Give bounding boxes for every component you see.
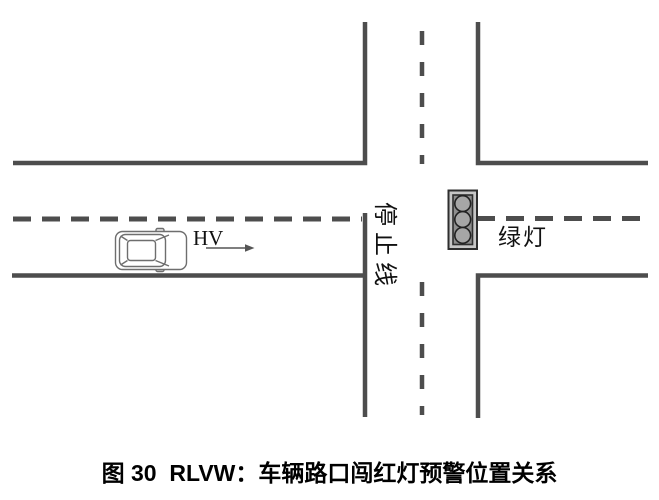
signal-lamp-bottom bbox=[455, 228, 471, 244]
figure-canvas: HV 停止线 绿灯 图 30 RLVW：车辆路口闯红灯预警位置关系 bbox=[0, 0, 659, 500]
road-edge-bottom-right bbox=[478, 276, 648, 419]
stop-line-label: 停止线 bbox=[371, 202, 397, 312]
host-vehicle-label: HV bbox=[193, 227, 223, 249]
signal-state-label: 绿灯 bbox=[498, 225, 548, 250]
signal-lamp-middle bbox=[455, 212, 471, 228]
car-top-view-icon bbox=[116, 229, 187, 272]
traffic-light-icon bbox=[449, 191, 478, 250]
figure-caption: 图 30 RLVW：车辆路口闯红灯预警位置关系 bbox=[0, 459, 659, 487]
road-edge-top-left bbox=[13, 22, 365, 163]
intersection-diagram bbox=[0, 0, 659, 450]
car-roof bbox=[128, 241, 156, 261]
road-edge-top-right bbox=[478, 22, 648, 163]
signal-lamp-top bbox=[455, 196, 471, 212]
